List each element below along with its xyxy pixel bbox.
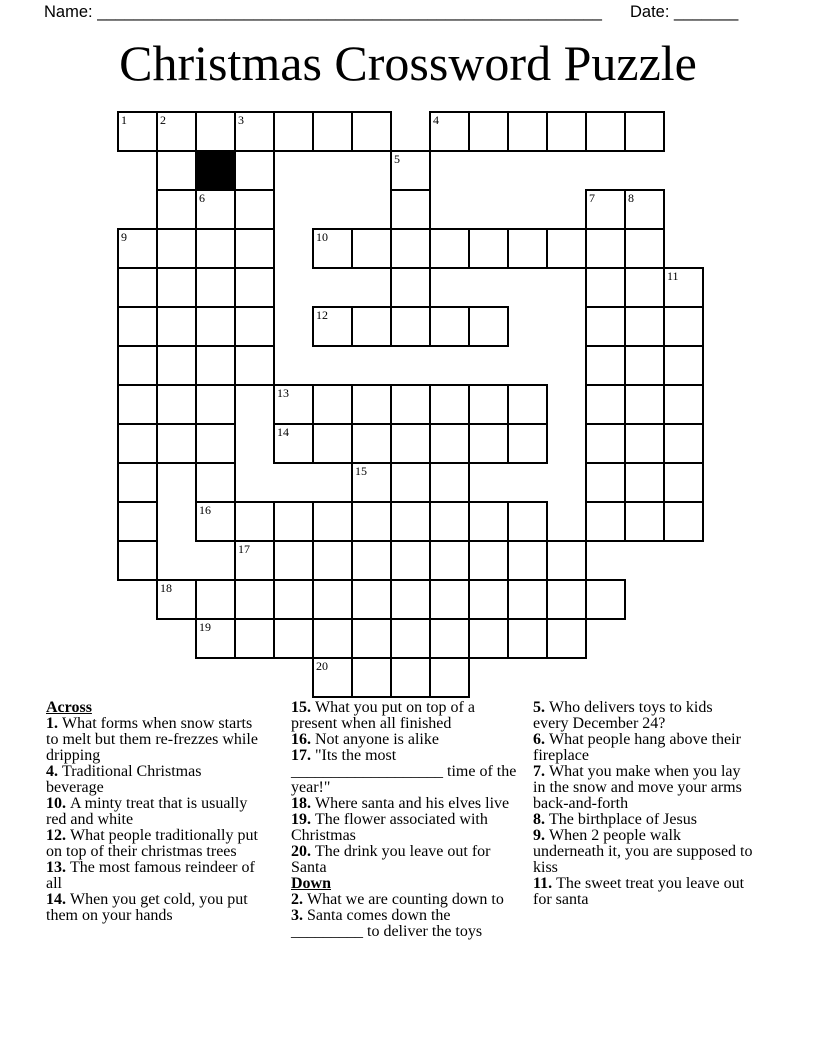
grid-cell[interactable] xyxy=(468,579,509,620)
grid-cell[interactable] xyxy=(195,423,236,464)
cell-number: 19 xyxy=(199,620,211,634)
grid-cell[interactable] xyxy=(468,228,509,269)
clue-number: 16. xyxy=(291,731,311,748)
clue-text: Traditional Christmas beverage xyxy=(46,763,201,796)
grid-cell[interactable] xyxy=(429,462,470,503)
cell-number: 6 xyxy=(199,191,205,205)
grid-cell[interactable] xyxy=(429,423,470,464)
black-cell xyxy=(195,150,236,191)
clue-text: Where santa and his elves live xyxy=(315,795,509,812)
grid-cell[interactable] xyxy=(234,306,275,347)
date-blank-line[interactable]: _______ xyxy=(674,3,738,21)
grid-cell[interactable] xyxy=(429,384,470,425)
grid-cell[interactable]: 18 xyxy=(156,579,197,620)
cell-number: 18 xyxy=(160,581,172,595)
grid-cell[interactable] xyxy=(663,501,704,542)
grid-cell[interactable] xyxy=(273,501,314,542)
grid-cell[interactable] xyxy=(624,501,665,542)
clue-column-2: 15.What you put on top of a present when… xyxy=(291,700,527,940)
grid-cell[interactable]: 1 xyxy=(117,111,158,152)
clue-text: What you put on top of a present when al… xyxy=(291,699,475,732)
cell-number: 5 xyxy=(394,152,400,166)
clue-number: 20. xyxy=(291,843,311,860)
clue-number: 14. xyxy=(46,891,66,908)
grid-cell[interactable] xyxy=(663,306,704,347)
grid-cell[interactable] xyxy=(312,111,353,152)
grid-cell[interactable]: 3 xyxy=(234,111,275,152)
grid-cell[interactable] xyxy=(507,540,548,581)
grid-cell[interactable]: 8 xyxy=(624,189,665,230)
cell-number: 14 xyxy=(277,425,289,439)
grid-cell[interactable] xyxy=(429,501,470,542)
grid-cell[interactable] xyxy=(624,462,665,503)
grid-cell[interactable] xyxy=(468,618,509,659)
cell-number: 1 xyxy=(121,113,127,127)
clue-column-3: 5.Who delivers toys to kids every Decemb… xyxy=(533,700,757,908)
cell-number: 2 xyxy=(160,113,166,127)
grid-cell[interactable] xyxy=(390,579,431,620)
clue-text: The drink you leave out for Santa xyxy=(291,843,491,876)
clue-item: 13.The most famous reindeer of all xyxy=(46,860,266,892)
cell-number: 11 xyxy=(667,269,679,283)
grid-cell[interactable] xyxy=(507,618,548,659)
grid-cell[interactable] xyxy=(429,657,470,698)
cell-number: 10 xyxy=(316,230,328,244)
grid-cell[interactable] xyxy=(312,579,353,620)
grid-cell[interactable] xyxy=(273,540,314,581)
clue-text: What forms when snow starts to melt but … xyxy=(46,715,258,764)
grid-cell[interactable] xyxy=(156,345,197,386)
grid-cell[interactable] xyxy=(273,618,314,659)
clue-item: 15.What you put on top of a present when… xyxy=(291,700,527,732)
grid-cell[interactable] xyxy=(234,150,275,191)
grid-cell[interactable]: 2 xyxy=(156,111,197,152)
grid-cell[interactable] xyxy=(429,306,470,347)
grid-cell[interactable] xyxy=(195,306,236,347)
grid-cell[interactable] xyxy=(351,579,392,620)
grid-cell[interactable] xyxy=(351,111,392,152)
grid-cell[interactable]: 16 xyxy=(195,501,236,542)
grid-cell[interactable]: 10 xyxy=(312,228,353,269)
grid-cell[interactable] xyxy=(624,384,665,425)
clue-text: The most famous reindeer of all xyxy=(46,859,255,892)
clue-text: When you get cold, you put them on your … xyxy=(46,891,248,924)
grid-cell[interactable] xyxy=(156,189,197,230)
grid-cell[interactable] xyxy=(312,618,353,659)
grid-cell[interactable] xyxy=(351,540,392,581)
grid-cell[interactable] xyxy=(429,618,470,659)
clue-number: 18. xyxy=(291,795,311,812)
grid-cell[interactable] xyxy=(117,306,158,347)
grid-cell[interactable] xyxy=(663,345,704,386)
clue-number: 8. xyxy=(533,811,545,828)
clue-item: 17."Its the most ___________________ tim… xyxy=(291,748,527,796)
grid-cell[interactable] xyxy=(585,345,626,386)
grid-cell[interactable] xyxy=(390,228,431,269)
grid-cell[interactable] xyxy=(117,267,158,308)
clue-item: 5.Who delivers toys to kids every Decemb… xyxy=(533,700,757,732)
clue-item: 7.What you make when you lay in the snow… xyxy=(533,764,757,812)
grid-cell[interactable] xyxy=(156,228,197,269)
grid-cell[interactable] xyxy=(507,579,548,620)
grid-cell[interactable] xyxy=(117,423,158,464)
grid-cell[interactable] xyxy=(546,111,587,152)
grid-cell[interactable] xyxy=(546,618,587,659)
grid-cell[interactable] xyxy=(585,267,626,308)
cell-number: 20 xyxy=(316,659,328,673)
grid-cell[interactable] xyxy=(390,267,431,308)
clue-section-header: Across xyxy=(46,700,266,716)
grid-cell[interactable] xyxy=(585,462,626,503)
grid-cell[interactable] xyxy=(351,501,392,542)
clue-number: 5. xyxy=(533,699,545,716)
clue-text: The flower associated with Christmas xyxy=(291,811,488,844)
grid-cell[interactable] xyxy=(546,540,587,581)
clue-text: Santa comes down the _________ to delive… xyxy=(291,907,482,940)
grid-cell[interactable] xyxy=(156,306,197,347)
clue-text: What we are counting down to xyxy=(307,891,504,908)
clue-number: 10. xyxy=(46,795,66,812)
clue-item: 2.What we are counting down to xyxy=(291,892,527,908)
grid-cell[interactable] xyxy=(117,462,158,503)
grid-cell[interactable] xyxy=(234,618,275,659)
grid-cell[interactable] xyxy=(390,306,431,347)
clue-item: 18.Where santa and his elves live xyxy=(291,796,527,812)
clue-number: 2. xyxy=(291,891,303,908)
grid-cell[interactable]: 19 xyxy=(195,618,236,659)
cell-number: 4 xyxy=(433,113,439,127)
grid-cell[interactable] xyxy=(624,267,665,308)
grid-cell[interactable] xyxy=(273,579,314,620)
grid-cell[interactable] xyxy=(195,228,236,269)
clue-number: 13. xyxy=(46,859,66,876)
grid-cell[interactable] xyxy=(351,657,392,698)
clue-text: The sweet treat you leave out for santa xyxy=(533,875,744,908)
clue-text: What people traditionally put on top of … xyxy=(46,827,258,860)
clue-number: 19. xyxy=(291,811,311,828)
grid-cell[interactable]: 15 xyxy=(351,462,392,503)
grid-cell[interactable] xyxy=(156,423,197,464)
grid-cell[interactable] xyxy=(195,345,236,386)
clue-item: 16.Not anyone is alike xyxy=(291,732,527,748)
grid-cell[interactable] xyxy=(195,111,236,152)
date-label: Date: xyxy=(630,3,669,21)
grid-cell[interactable] xyxy=(585,228,626,269)
grid-cell[interactable] xyxy=(624,228,665,269)
clue-text: What you make when you lay in the snow a… xyxy=(533,763,742,812)
worksheet-page: Name: __________________________________… xyxy=(0,0,816,1056)
grid-cell[interactable] xyxy=(390,540,431,581)
grid-cell[interactable] xyxy=(390,501,431,542)
clue-section-header: Down xyxy=(291,876,527,892)
grid-cell[interactable] xyxy=(390,384,431,425)
grid-cell[interactable]: 6 xyxy=(195,189,236,230)
clue-text: "Its the most ___________________ time o… xyxy=(291,747,516,796)
grid-cell[interactable] xyxy=(117,345,158,386)
cell-number: 8 xyxy=(628,191,634,205)
clue-item: 20.The drink you leave out for Santa xyxy=(291,844,527,876)
grid-cell[interactable]: 20 xyxy=(312,657,353,698)
grid-cell[interactable]: 5 xyxy=(390,150,431,191)
clue-item: 10.A minty treat that is usually red and… xyxy=(46,796,266,828)
grid-cell[interactable] xyxy=(117,501,158,542)
clue-item: 8.The birthplace of Jesus xyxy=(533,812,757,828)
grid-cell[interactable] xyxy=(312,501,353,542)
grid-cell[interactable] xyxy=(585,306,626,347)
cell-number: 7 xyxy=(589,191,595,205)
grid-cell[interactable]: 17 xyxy=(234,540,275,581)
clue-number: 4. xyxy=(46,763,58,780)
grid-cell[interactable]: 9 xyxy=(117,228,158,269)
grid-cell[interactable] xyxy=(156,267,197,308)
grid-cell[interactable] xyxy=(195,579,236,620)
grid-cell[interactable] xyxy=(273,111,314,152)
clue-number: 9. xyxy=(533,827,545,844)
grid-cell[interactable] xyxy=(468,384,509,425)
clue-text: The birthplace of Jesus xyxy=(549,811,697,828)
clue-number: 6. xyxy=(533,731,545,748)
clue-text: A minty treat that is usually red and wh… xyxy=(46,795,247,828)
clue-item: 3.Santa comes down the _________ to deli… xyxy=(291,908,527,940)
cell-number: 3 xyxy=(238,113,244,127)
grid-cell[interactable] xyxy=(312,540,353,581)
grid-cell[interactable] xyxy=(390,189,431,230)
grid-cell[interactable] xyxy=(234,501,275,542)
grid-cell[interactable]: 4 xyxy=(429,111,470,152)
clue-number: 17. xyxy=(291,747,311,764)
clue-number: 1. xyxy=(46,715,58,732)
clue-text: When 2 people walk underneath it, you ar… xyxy=(533,827,753,876)
grid-cell[interactable] xyxy=(585,423,626,464)
clue-text: Who delivers toys to kids every December… xyxy=(533,699,713,732)
grid-cell[interactable] xyxy=(390,657,431,698)
grid-cell[interactable]: 7 xyxy=(585,189,626,230)
grid-cell[interactable] xyxy=(117,540,158,581)
clue-number: 11. xyxy=(533,875,552,892)
cell-number: 9 xyxy=(121,230,127,244)
grid-cell[interactable] xyxy=(546,579,587,620)
grid-cell[interactable] xyxy=(507,228,548,269)
clue-item: 6.What people hang above their fireplace xyxy=(533,732,757,764)
grid-cell[interactable] xyxy=(468,540,509,581)
grid-cell[interactable] xyxy=(390,618,431,659)
grid-cell[interactable] xyxy=(429,579,470,620)
date-field: Date: _______ xyxy=(630,2,738,22)
cell-number: 15 xyxy=(355,464,367,478)
grid-cell[interactable] xyxy=(312,423,353,464)
grid-cell[interactable] xyxy=(663,384,704,425)
page-title: Christmas Crossword Puzzle xyxy=(0,36,816,90)
grid-cell[interactable] xyxy=(468,423,509,464)
name-field: Name: __________________________________… xyxy=(44,2,602,22)
grid-cell[interactable] xyxy=(351,423,392,464)
grid-cell[interactable]: 11 xyxy=(663,267,704,308)
clue-text: What people hang above their fireplace xyxy=(533,731,741,764)
grid-cell[interactable] xyxy=(156,150,197,191)
grid-cell[interactable] xyxy=(624,111,665,152)
grid-cell[interactable] xyxy=(195,384,236,425)
clue-number: 7. xyxy=(533,763,545,780)
grid-cell[interactable] xyxy=(429,540,470,581)
grid-cell[interactable] xyxy=(624,423,665,464)
grid-cell[interactable] xyxy=(234,345,275,386)
grid-cell[interactable] xyxy=(351,228,392,269)
clue-text: Not anyone is alike xyxy=(315,731,439,748)
clue-item: 1.What forms when snow starts to melt bu… xyxy=(46,716,266,764)
clue-item: 14.When you get cold, you put them on yo… xyxy=(46,892,266,924)
name-blank-line[interactable]: ________________________________________… xyxy=(97,3,602,21)
grid-cell[interactable] xyxy=(663,462,704,503)
grid-cell[interactable] xyxy=(546,228,587,269)
grid-cell[interactable] xyxy=(234,189,275,230)
clue-item: 4.Traditional Christmas beverage xyxy=(46,764,266,796)
grid-cell[interactable] xyxy=(624,306,665,347)
grid-cell[interactable]: 13 xyxy=(273,384,314,425)
grid-cell[interactable] xyxy=(585,384,626,425)
grid-cell[interactable] xyxy=(351,306,392,347)
grid-cell[interactable] xyxy=(507,384,548,425)
clue-item: 19.The flower associated with Christmas xyxy=(291,812,527,844)
grid-cell[interactable] xyxy=(351,384,392,425)
cell-number: 17 xyxy=(238,542,250,556)
grid-cell[interactable] xyxy=(585,579,626,620)
grid-cell[interactable] xyxy=(468,501,509,542)
clue-number: 3. xyxy=(291,907,303,924)
cell-number: 12 xyxy=(316,308,328,322)
clue-number: 12. xyxy=(46,827,66,844)
clue-column-1: Across1.What forms when snow starts to m… xyxy=(46,700,266,924)
grid-cell[interactable] xyxy=(312,384,353,425)
grid-cell[interactable] xyxy=(156,384,197,425)
grid-cell[interactable] xyxy=(663,423,704,464)
grid-cell[interactable] xyxy=(507,111,548,152)
grid-cell[interactable] xyxy=(507,501,548,542)
grid-cell[interactable] xyxy=(234,579,275,620)
grid-cell[interactable] xyxy=(117,384,158,425)
grid-cell[interactable] xyxy=(624,345,665,386)
grid-cell[interactable] xyxy=(585,111,626,152)
grid-cell[interactable] xyxy=(351,618,392,659)
grid-cell[interactable]: 12 xyxy=(312,306,353,347)
clue-item: 11.The sweet treat you leave out for san… xyxy=(533,876,757,908)
grid-cell[interactable] xyxy=(195,267,236,308)
grid-cell[interactable] xyxy=(234,267,275,308)
cell-number: 13 xyxy=(277,386,289,400)
grid-cell[interactable] xyxy=(429,228,470,269)
grid-cell[interactable] xyxy=(585,501,626,542)
clue-item: 12.What people traditionally put on top … xyxy=(46,828,266,860)
name-label: Name: xyxy=(44,3,93,21)
grid-cell[interactable]: 14 xyxy=(273,423,314,464)
cell-number: 16 xyxy=(199,503,211,517)
clue-number: 15. xyxy=(291,699,311,716)
grid-cell[interactable] xyxy=(507,423,548,464)
grid-cell[interactable] xyxy=(390,462,431,503)
grid-cell[interactable] xyxy=(234,228,275,269)
clue-item: 9.When 2 people walk underneath it, you … xyxy=(533,828,757,876)
grid-cell[interactable] xyxy=(468,111,509,152)
grid-cell[interactable] xyxy=(468,306,509,347)
grid-cell[interactable] xyxy=(195,462,236,503)
grid-cell[interactable] xyxy=(390,423,431,464)
